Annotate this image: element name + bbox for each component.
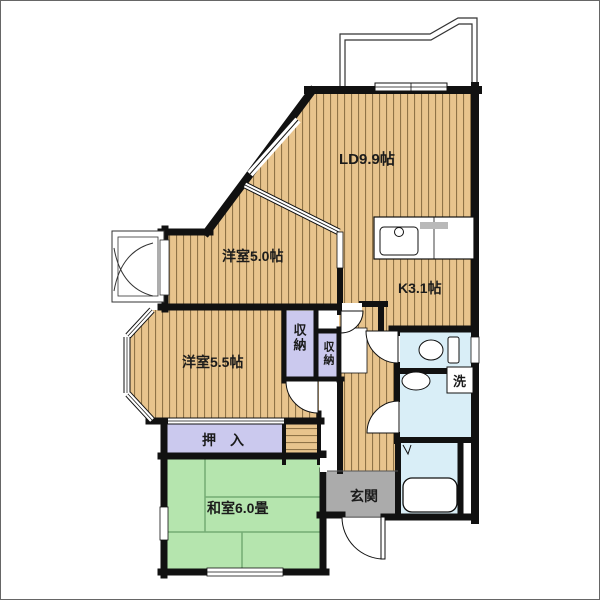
pipe-space xyxy=(463,442,472,514)
wash-basin xyxy=(402,372,430,390)
kitchen-counter xyxy=(374,217,474,259)
label-washer: 洗 xyxy=(453,374,466,389)
label-oshiire: 押 入 xyxy=(202,432,244,448)
label-storage-b: 収納 xyxy=(322,341,335,367)
japanese-room-west-window xyxy=(160,507,168,540)
bay-window-5-0 xyxy=(112,231,169,302)
label-storage-a: 収納 xyxy=(292,323,307,353)
balcony-outline xyxy=(340,18,477,86)
sliding-door xyxy=(337,232,343,268)
label-kitchen: K3.1帖 xyxy=(398,280,442,296)
entry-door-swing xyxy=(342,517,384,559)
counter-gray-strip xyxy=(420,222,448,229)
toilet-window xyxy=(471,337,479,363)
label-entrance: 玄関 xyxy=(350,488,378,504)
bathtub xyxy=(403,478,457,512)
floor-plan-svg: LD9.9帖 洋室5.0帖 K3.1帖 洋室5.5帖 収納 収納 押 入 和室6… xyxy=(1,1,600,601)
floor-plan: LD9.9帖 洋室5.0帖 K3.1帖 洋室5.5帖 収納 収納 押 入 和室6… xyxy=(0,0,600,600)
label-living-dining: LD9.9帖 xyxy=(339,150,395,168)
faucet-icon xyxy=(395,228,404,237)
label-western-5-5: 洋室5.5帖 xyxy=(182,354,243,370)
entry-door-leaf xyxy=(381,517,385,559)
label-western-5-0: 洋室5.0帖 xyxy=(222,248,283,264)
closet-door-panel xyxy=(341,328,367,373)
label-japanese-room: 和室6.0畳 xyxy=(207,500,268,516)
